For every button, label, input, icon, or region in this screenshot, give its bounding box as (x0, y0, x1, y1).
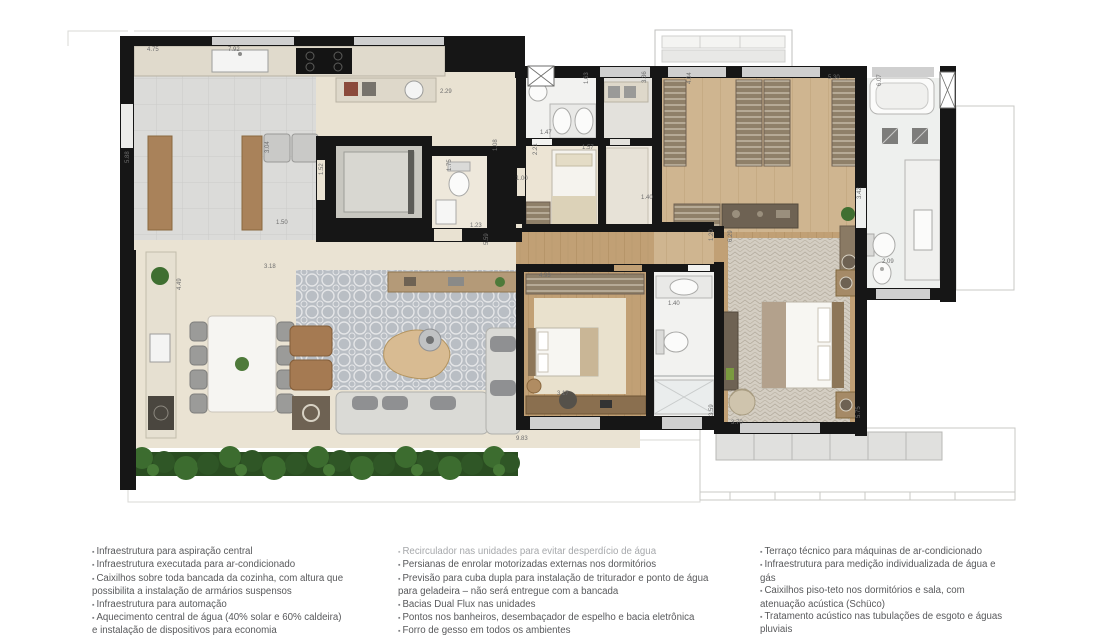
dimension-label: 1.57 (582, 145, 594, 151)
side-terrace (956, 106, 1014, 290)
dimension-label: 1.40 (668, 301, 680, 307)
terrace-sink (150, 334, 170, 362)
feature-item: Persianas de enrolar motorizadas externa… (398, 559, 716, 572)
plant (151, 267, 169, 285)
feature-item: Infraestrutura para automação (92, 599, 344, 612)
toilet-tank (656, 330, 664, 354)
toilet (449, 172, 469, 196)
wardrobe (736, 80, 762, 166)
dimension-label: 5.59 (484, 233, 490, 245)
wardrobe (764, 80, 790, 166)
bottom-balcony (700, 428, 1015, 500)
dimension-label: 2.09 (882, 259, 894, 265)
floor-plan-image: 4.757.925.882.293.041.521.503.184.491.75… (0, 0, 1100, 510)
dimension-label: 1.20 (709, 229, 715, 241)
features-column: Recirculador nas unidades para evitar de… (398, 546, 716, 639)
features-column: Terraço técnico para máquinas de ar-cond… (760, 546, 1004, 637)
top-balcony (655, 30, 792, 68)
kitchen-cabinet-center (242, 136, 262, 230)
dimension-label: 1.08 (493, 139, 499, 151)
pantry-sink (405, 81, 423, 99)
features-columns: Infraestrutura para aspiração centralInf… (0, 546, 1100, 642)
laundry (604, 82, 648, 102)
shaft-hatched (528, 66, 554, 86)
dimension-label: 3.18 (264, 264, 276, 270)
desk (526, 396, 646, 414)
hedge-plants (131, 446, 520, 480)
balcony-cabinets (716, 432, 942, 460)
dimension-label: 1.47 (540, 130, 552, 136)
feature-item: Caixilhos sobre toda bancada da cozinha,… (92, 573, 344, 599)
dimension-label: 6.29 (728, 230, 734, 242)
feature-item: Infraestrutura para medição individualiz… (760, 559, 1004, 585)
dimension-label: 6.07 (877, 74, 883, 86)
features-column: Infraestrutura para aspiração centralInf… (92, 546, 344, 638)
dimension-label: 1.23 (470, 223, 482, 229)
dimension-label: 4.04 (687, 72, 693, 84)
wardrobe (832, 80, 856, 166)
feature-item: Previsão para cuba dupla para instalação… (398, 573, 716, 599)
dimension-label: 2.21 (533, 143, 539, 155)
bed-headboard (832, 302, 844, 388)
closet-nook (606, 148, 648, 228)
powder-sink (436, 200, 456, 224)
dimension-label: 3.36 (642, 71, 648, 83)
feature-item: Forro de gesso em todos os ambientes (398, 625, 716, 638)
feature-item: Infraestrutura para aspiração central (92, 546, 344, 559)
dimension-label: 1.50 (276, 220, 288, 226)
dimension-label: 1.52 (319, 163, 325, 175)
fridge (292, 134, 318, 162)
dimension-label: 1.40 (641, 195, 653, 201)
armchair (290, 360, 332, 390)
dimension-label: 2.29 (440, 89, 452, 95)
feature-item: Caixilhos piso-teto nos dormitórios e sa… (760, 585, 1004, 611)
feature-item: Bacias Dual Flux nas unidades (398, 599, 716, 612)
centerpiece (235, 357, 249, 371)
dimension-label: 4.49 (177, 278, 183, 290)
dimension-label: 5.88 (125, 151, 131, 163)
side-stool (527, 379, 541, 393)
feature-item: Aquecimento central de água (40% solar e… (92, 612, 344, 638)
dimension-label: 3.59 (709, 404, 715, 416)
bidet (873, 262, 891, 284)
floor-plan-svg: 4.757.925.882.293.041.521.503.184.491.75… (0, 0, 1100, 510)
dimension-label: 1.63 (584, 72, 590, 84)
feature-item: Tratamento acústico nas tubulações de es… (760, 611, 1004, 637)
dimension-label: 3.17 (557, 391, 569, 397)
elevator (336, 146, 422, 218)
dimension-label: 9.83 (516, 436, 528, 442)
bed-headboard (528, 328, 536, 376)
grill-cabinet (148, 396, 174, 430)
feature-item: Recirculador nas unidades para evitar de… (398, 546, 716, 559)
dimension-label: 1.75 (447, 159, 453, 171)
dimension-label: 3.04 (265, 141, 271, 153)
dimension-label: 3.70 (731, 420, 743, 426)
fire-table (292, 396, 330, 430)
feature-item: Infraestrutura executada para ar-condici… (92, 559, 344, 572)
toilet (664, 332, 688, 352)
kitchen-cabinet-left (148, 136, 172, 230)
dimension-label: 5.30 (828, 75, 840, 81)
dimension-label: 7.92 (228, 47, 240, 53)
armchair (290, 326, 332, 356)
dimension-label: 1.00 (516, 176, 528, 182)
cooktop (296, 48, 352, 74)
feature-item: Pontos nos banheiros, desembaçador de es… (398, 612, 716, 625)
plant (841, 207, 855, 221)
dimension-label: 3.42 (857, 187, 863, 199)
floor-plan-page: 4.757.925.882.293.041.521.503.184.491.75… (0, 0, 1100, 642)
dimension-label: 4.75 (147, 47, 159, 53)
wardrobe (664, 80, 686, 166)
dimension-label: 4.93 (539, 273, 551, 279)
kitchen-counter (134, 46, 445, 76)
shaft-hatched (940, 72, 955, 108)
toilet (873, 233, 895, 257)
feature-item: Terraço técnico para máquinas de ar-cond… (760, 546, 1004, 559)
dimension-label: 5.75 (856, 406, 862, 418)
